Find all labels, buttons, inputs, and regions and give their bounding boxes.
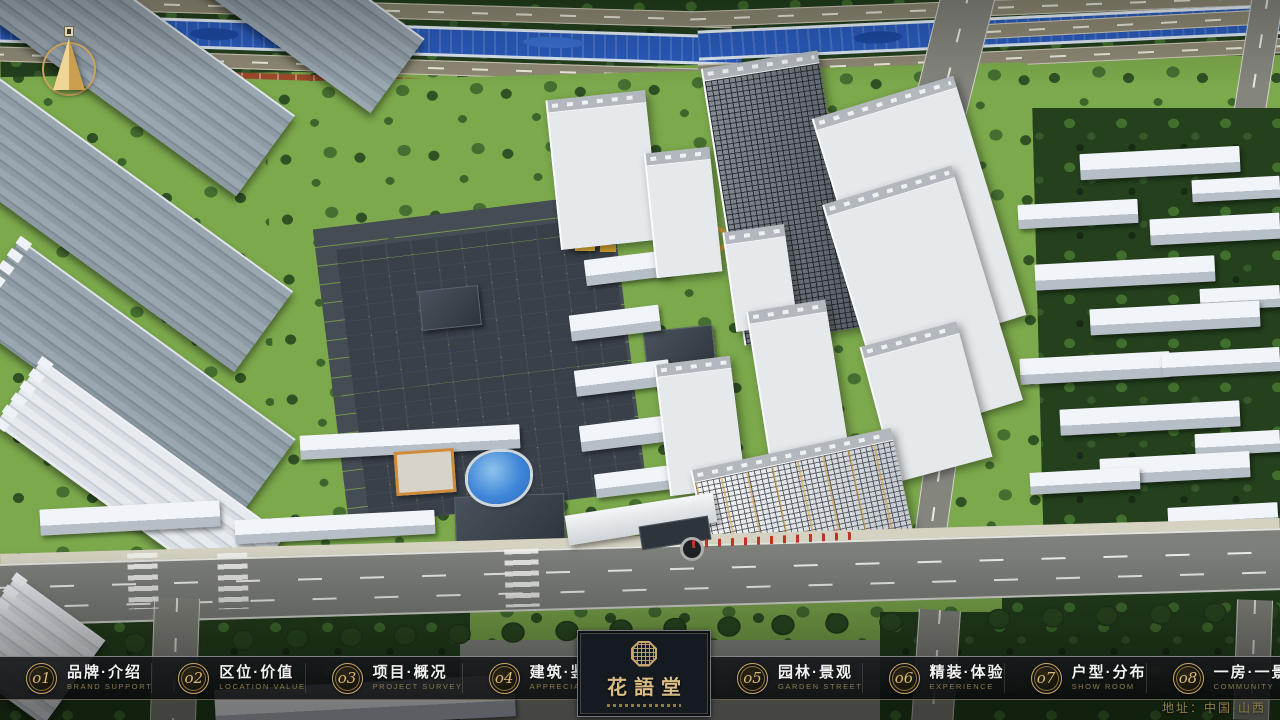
tower-facade (647, 160, 722, 278)
crosswalk (217, 553, 249, 610)
nav-label: 区位·价值 (219, 664, 305, 681)
nav-number-badge: o8 (1173, 663, 1204, 694)
nav-label: 品牌·介绍 (67, 664, 152, 681)
presentation-window: ✕ o1 品牌·介绍BRAND SUPPORT o2 区位·价值LOCATION… (0, 0, 1280, 720)
nav-number-badge: o7 (1031, 663, 1062, 694)
tower-facade (549, 103, 661, 249)
nav-number-badge: o1 (26, 663, 57, 694)
nav-number-badge: o6 (889, 663, 920, 694)
amenity-building (394, 448, 457, 496)
address-text: 地址：中国·山西 (1162, 699, 1266, 716)
nav-label: 项目·概况 (373, 664, 463, 681)
seal-emblem-icon (631, 641, 657, 667)
compass-flag (64, 26, 74, 37)
nav-sublabel: BRAND SUPPORT (67, 683, 152, 692)
compass-needle-highlight (53, 38, 69, 90)
nav-label: 户型·分布 (1072, 664, 1147, 681)
clubhouse-roof (418, 285, 482, 331)
project-logo-panel[interactable]: 花語堂 (577, 630, 711, 717)
residential-tower (644, 147, 723, 278)
nav-sublabel: GARDEN STREET (778, 683, 863, 692)
nav-item-interior[interactable]: o6 精装·体验EXPERIENCE (863, 657, 1005, 699)
nav-group-left: o1 品牌·介绍BRAND SUPPORT o2 区位·价值LOCATION V… (0, 656, 577, 700)
residential-tower (545, 90, 660, 250)
row-house-slab (1191, 176, 1280, 203)
nav-item-project[interactable]: o3 项目·概况PROJECT SURVEY (306, 657, 463, 699)
nav-item-brand[interactable]: o1 品牌·介绍BRAND SUPPORT (0, 657, 152, 699)
nav-item-views[interactable]: o8 一房·一景COMMUNITY (1147, 657, 1280, 699)
nav-number-badge: o2 (178, 663, 209, 694)
nav-sublabel: LOCATION VALUE (219, 683, 305, 692)
logo-caption-line (607, 704, 681, 707)
nav-item-location[interactable]: o2 区位·价值LOCATION VALUE (152, 657, 305, 699)
crosswalk (504, 549, 540, 608)
project-logo-name: 花語堂 (600, 671, 688, 700)
nav-item-floorplan[interactable]: o7 户型·分布SHOW ROOM (1005, 657, 1147, 699)
nav-sublabel: COMMUNITY (1214, 683, 1280, 692)
crosswalk (127, 553, 159, 610)
nav-sublabel: EXPERIENCE (930, 683, 1005, 692)
nav-sublabel: SHOW ROOM (1072, 683, 1147, 692)
nav-number-badge: o4 (489, 663, 520, 694)
nav-label: 园林·景观 (778, 664, 863, 681)
nav-label: 一房·一景 (1214, 664, 1280, 681)
nav-label: 精装·体验 (930, 664, 1005, 681)
nav-group-right: o5 园林·景观GARDEN STREET o6 精装·体验EXPERIENCE… (711, 656, 1280, 700)
shuttle-bus (600, 245, 616, 252)
nav-number-badge: o5 (737, 663, 768, 694)
compass-north-icon (38, 26, 100, 122)
nav-item-garden[interactable]: o5 园林·景观GARDEN STREET (711, 657, 863, 699)
nav-sublabel: PROJECT SURVEY (373, 683, 463, 692)
nav-number-badge: o3 (332, 663, 363, 694)
